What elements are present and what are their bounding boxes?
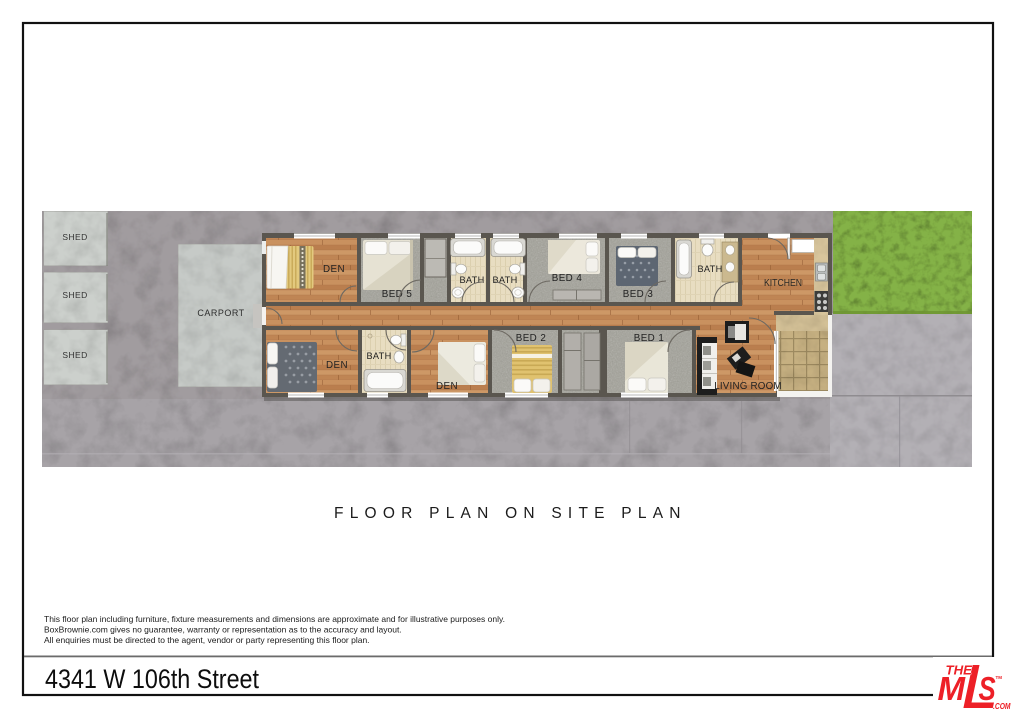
svg-text:4341 W 106th Street: 4341 W 106th Street [45, 664, 259, 694]
svg-text:KITCHEN: KITCHEN [764, 278, 802, 289]
svg-text:BED 4: BED 4 [552, 273, 583, 284]
svg-text:BED 5: BED 5 [382, 289, 413, 300]
svg-text:This floor plan including furn: This floor plan including furniture, fix… [44, 614, 505, 624]
svg-text:BED 2: BED 2 [516, 333, 547, 344]
svg-text:BATH: BATH [492, 275, 517, 285]
svg-text:TM: TM [996, 675, 1003, 680]
svg-text:.COM: .COM [993, 702, 1011, 711]
svg-text:BATH: BATH [459, 275, 484, 285]
svg-text:SHED: SHED [62, 350, 87, 360]
svg-text:DEN: DEN [326, 360, 348, 371]
svg-text:DEN: DEN [436, 381, 458, 392]
svg-text:CARPORT: CARPORT [197, 308, 244, 318]
svg-text:DEN: DEN [323, 264, 345, 275]
svg-text:All enquiries must be directed: All enquiries must be directed to the ag… [44, 635, 370, 645]
svg-text:BATH: BATH [366, 351, 391, 361]
svg-text:SHED: SHED [62, 232, 87, 242]
svg-text:LIVING ROOM: LIVING ROOM [714, 381, 782, 392]
svg-text:BED 1: BED 1 [634, 333, 665, 344]
svg-text:BATH: BATH [697, 264, 722, 274]
svg-text:SHED: SHED [62, 290, 87, 300]
svg-text:M: M [938, 670, 967, 707]
svg-text:BoxBrownie.com gives no guaran: BoxBrownie.com gives no guarantee, warra… [44, 625, 402, 635]
svg-text:FLOOR PLAN ON SITE PLAN: FLOOR PLAN ON SITE PLAN [334, 505, 687, 522]
